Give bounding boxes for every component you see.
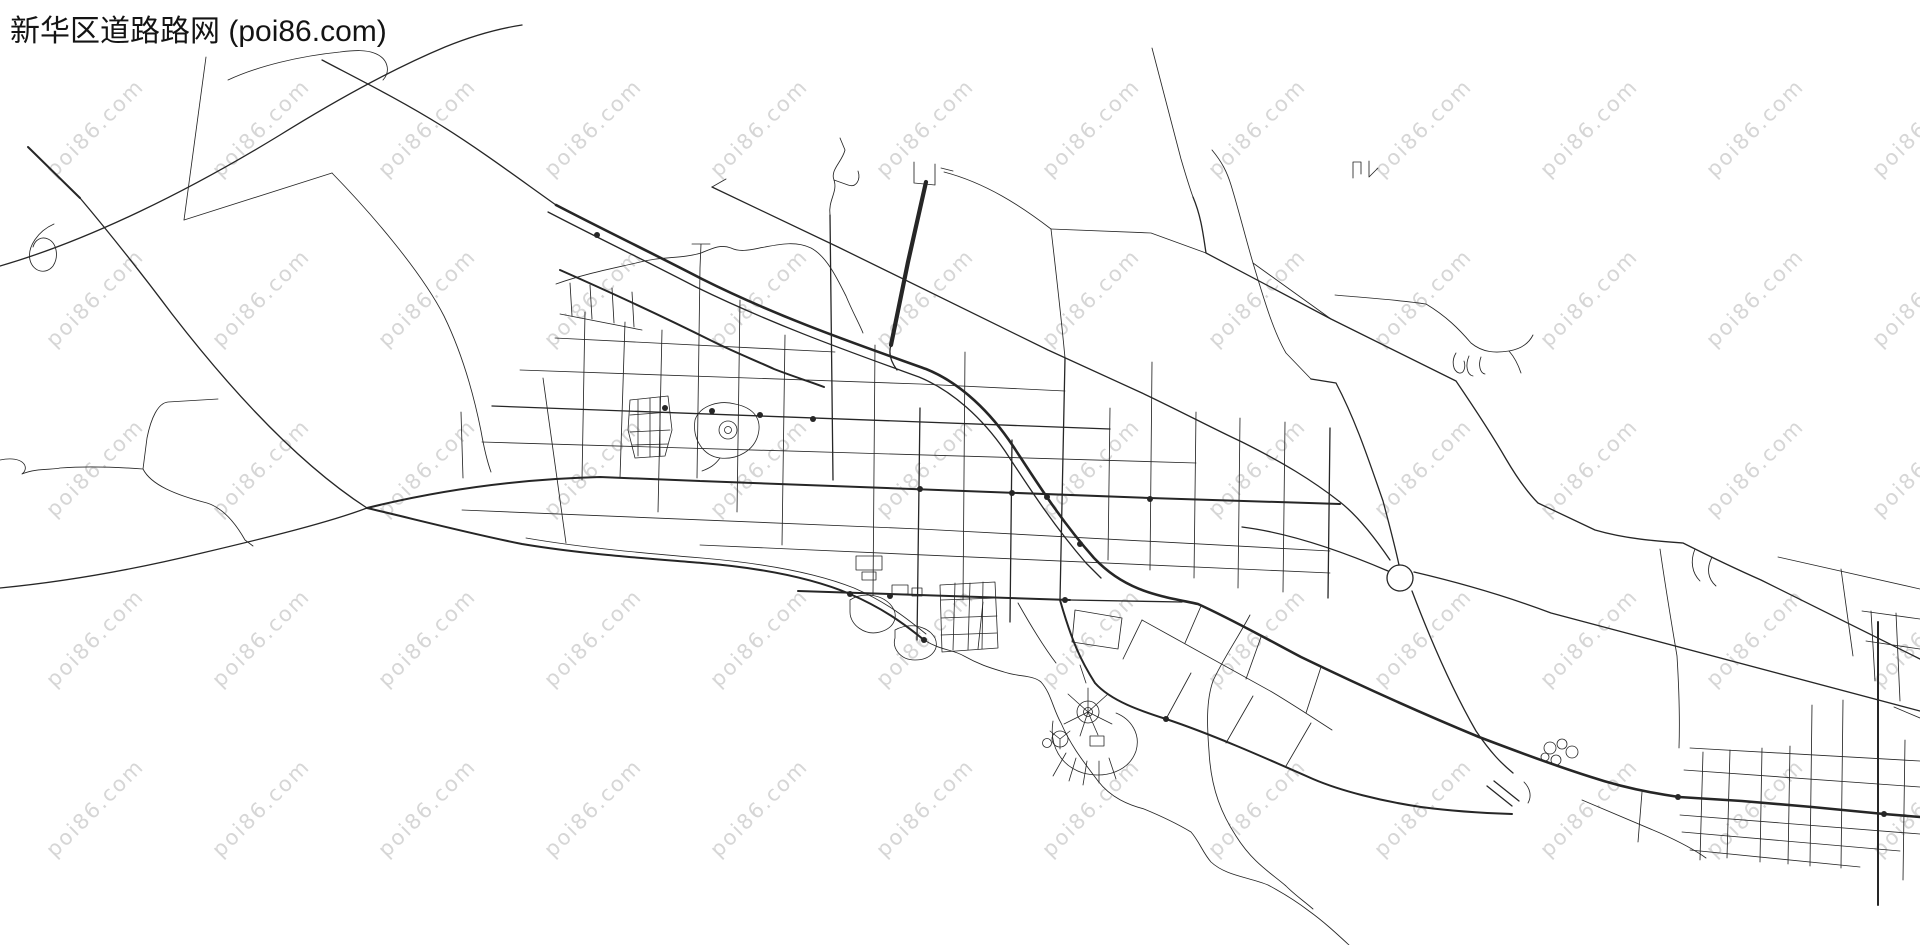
roundabout-feeder-s <box>1412 591 1513 773</box>
tl-corner-segment <box>28 147 80 198</box>
railway-ticks <box>914 162 953 185</box>
grid-v8-twig2 <box>834 171 859 186</box>
small-wheel-inner <box>1043 739 1052 748</box>
park-circle-inner <box>725 427 732 434</box>
cross-internal <box>1253 263 1331 319</box>
west-junction-road <box>0 508 367 588</box>
grid-v18 <box>1283 422 1285 592</box>
grid-h-south-ext <box>1070 600 1182 602</box>
roundabout <box>1387 565 1413 591</box>
right-edge-stub <box>1894 707 1920 718</box>
town-horizontals <box>1680 748 1920 867</box>
town-diagonal <box>1582 800 1706 858</box>
tl-long-diagonal <box>80 198 367 508</box>
stream-wiggle <box>1208 615 1313 909</box>
junction-dot <box>921 637 927 643</box>
junction-dot <box>887 593 893 599</box>
junction-dot <box>1077 541 1083 547</box>
highway-companion <box>548 212 1101 578</box>
grid-h-major-north <box>367 477 1340 508</box>
grid-v13 <box>1060 358 1065 600</box>
grid-v15 <box>1150 362 1152 570</box>
junction-dot <box>757 412 763 418</box>
double-tick-2 <box>1494 781 1519 801</box>
d2-branch1 <box>1692 549 1700 581</box>
map-title: 新华区道路路网 (poi86.com) <box>10 6 387 50</box>
grid-h3 <box>492 406 1110 429</box>
tilted-rect-block <box>1072 610 1122 649</box>
double-tick-1 <box>1487 786 1512 806</box>
cluster-circle-4 <box>1551 755 1561 765</box>
highway-feeder-nw <box>322 60 556 205</box>
park-circle-outer <box>719 421 737 439</box>
amusement-oval <box>1052 713 1137 775</box>
highway-main <box>556 205 1920 817</box>
maze-block-1-verticals <box>638 397 660 457</box>
junction-dot <box>1147 496 1153 502</box>
junction-dot <box>1675 794 1681 800</box>
cluster-circle-5 <box>1541 753 1549 761</box>
junction-dot <box>810 416 816 422</box>
junction-dot <box>594 232 600 238</box>
tl-sweep-curve <box>0 25 522 266</box>
map-canvas: poi86.compoi86.compoi86.compoi86.compoi8… <box>0 0 1920 945</box>
town-verticals <box>1700 700 1905 880</box>
hand-finger1 <box>1453 353 1465 373</box>
right-edge-v2 <box>1896 613 1900 701</box>
grid-h4 <box>482 442 1196 463</box>
grid-v7 <box>782 335 785 545</box>
grid-v2 <box>582 312 585 480</box>
road-network <box>0 0 1920 945</box>
hand-tail <box>1509 351 1521 373</box>
coastline-wiggle <box>924 640 1349 945</box>
bend-road-south <box>1060 600 1512 814</box>
p1-border <box>1051 229 1206 253</box>
amusement-fan <box>1053 753 1116 785</box>
grid-v8-twig <box>830 138 845 215</box>
junction-dot <box>1044 494 1050 500</box>
grid-v-x462 <box>461 412 463 478</box>
junction-dot <box>1062 597 1068 603</box>
hand-curve <box>1335 295 1533 352</box>
coast-main-road <box>367 508 924 640</box>
district-connectors <box>1123 620 1311 766</box>
roundabout-feeder-n <box>1311 379 1399 565</box>
cluster-circle-3 <box>1566 746 1578 758</box>
grid-v14 <box>1108 408 1110 560</box>
grid-v17 <box>1238 418 1240 588</box>
grid-comb-base <box>560 314 642 330</box>
junction-dot <box>1163 716 1169 722</box>
grid-h7 <box>700 545 1330 573</box>
rural-v2 <box>1841 569 1853 656</box>
grid-v3 <box>620 322 625 478</box>
grid-v1 <box>543 378 566 543</box>
grid-v12 <box>1010 440 1012 622</box>
shore-big-rect <box>856 556 882 570</box>
ne-border <box>944 172 1051 229</box>
grid-v11 <box>963 352 965 600</box>
district-blocks <box>1185 606 1321 713</box>
grid-v16 <box>1194 412 1196 578</box>
park-blob-tail <box>702 458 720 471</box>
hand-finger3 <box>1480 357 1485 374</box>
grid-h6 <box>462 510 1330 551</box>
tl-title-hook <box>228 51 387 80</box>
cluster-circle-1 <box>1544 742 1556 754</box>
tl-teardrop <box>30 224 57 271</box>
small-arc <box>1524 782 1530 803</box>
cluster-circle-2 <box>1557 739 1567 749</box>
rural-h1 <box>1778 557 1920 589</box>
town-left-vertical <box>1638 792 1642 842</box>
junction-dot <box>847 591 853 597</box>
d2-descent <box>1152 48 1193 197</box>
right-edge-h2 <box>1866 641 1920 649</box>
railway-bar <box>891 182 926 345</box>
grid-v6 <box>737 300 740 512</box>
shore-rects <box>862 572 922 596</box>
tl-triangle-left <box>184 57 206 220</box>
grid-v8 <box>830 215 833 480</box>
ne-border-vertical <box>1051 229 1065 358</box>
d1-tick <box>712 179 726 187</box>
coast-connector-2 <box>1018 603 1056 663</box>
hand-finger2 <box>1467 356 1473 376</box>
left-squiggle <box>0 459 143 474</box>
grid-h1 <box>555 338 835 352</box>
bracket-ticks <box>1353 161 1378 178</box>
amusement-spokes <box>1064 688 1112 736</box>
rural-vertical-1 <box>1660 549 1679 748</box>
claw-road <box>143 399 253 546</box>
tl-u-curve <box>332 173 491 472</box>
roundabout-feeder-w <box>1242 527 1388 571</box>
junction-dot <box>917 486 923 492</box>
junction-dot <box>662 405 668 411</box>
tl-triangle-base <box>184 173 332 220</box>
grid-h-major-south <box>798 591 1070 600</box>
junction-dot <box>1881 811 1887 817</box>
d2-main <box>1193 197 1920 659</box>
junction-dot <box>709 408 715 414</box>
grid-h2 <box>520 370 1065 391</box>
maze-block-2-verticals <box>953 582 983 650</box>
district-parallel <box>1142 620 1332 730</box>
right-edge-v1 <box>1871 611 1875 681</box>
grid-v10 <box>917 408 920 640</box>
junction-dot <box>1009 490 1015 496</box>
d2-branch2 <box>1709 557 1716 586</box>
amusement-rect <box>1090 736 1104 746</box>
